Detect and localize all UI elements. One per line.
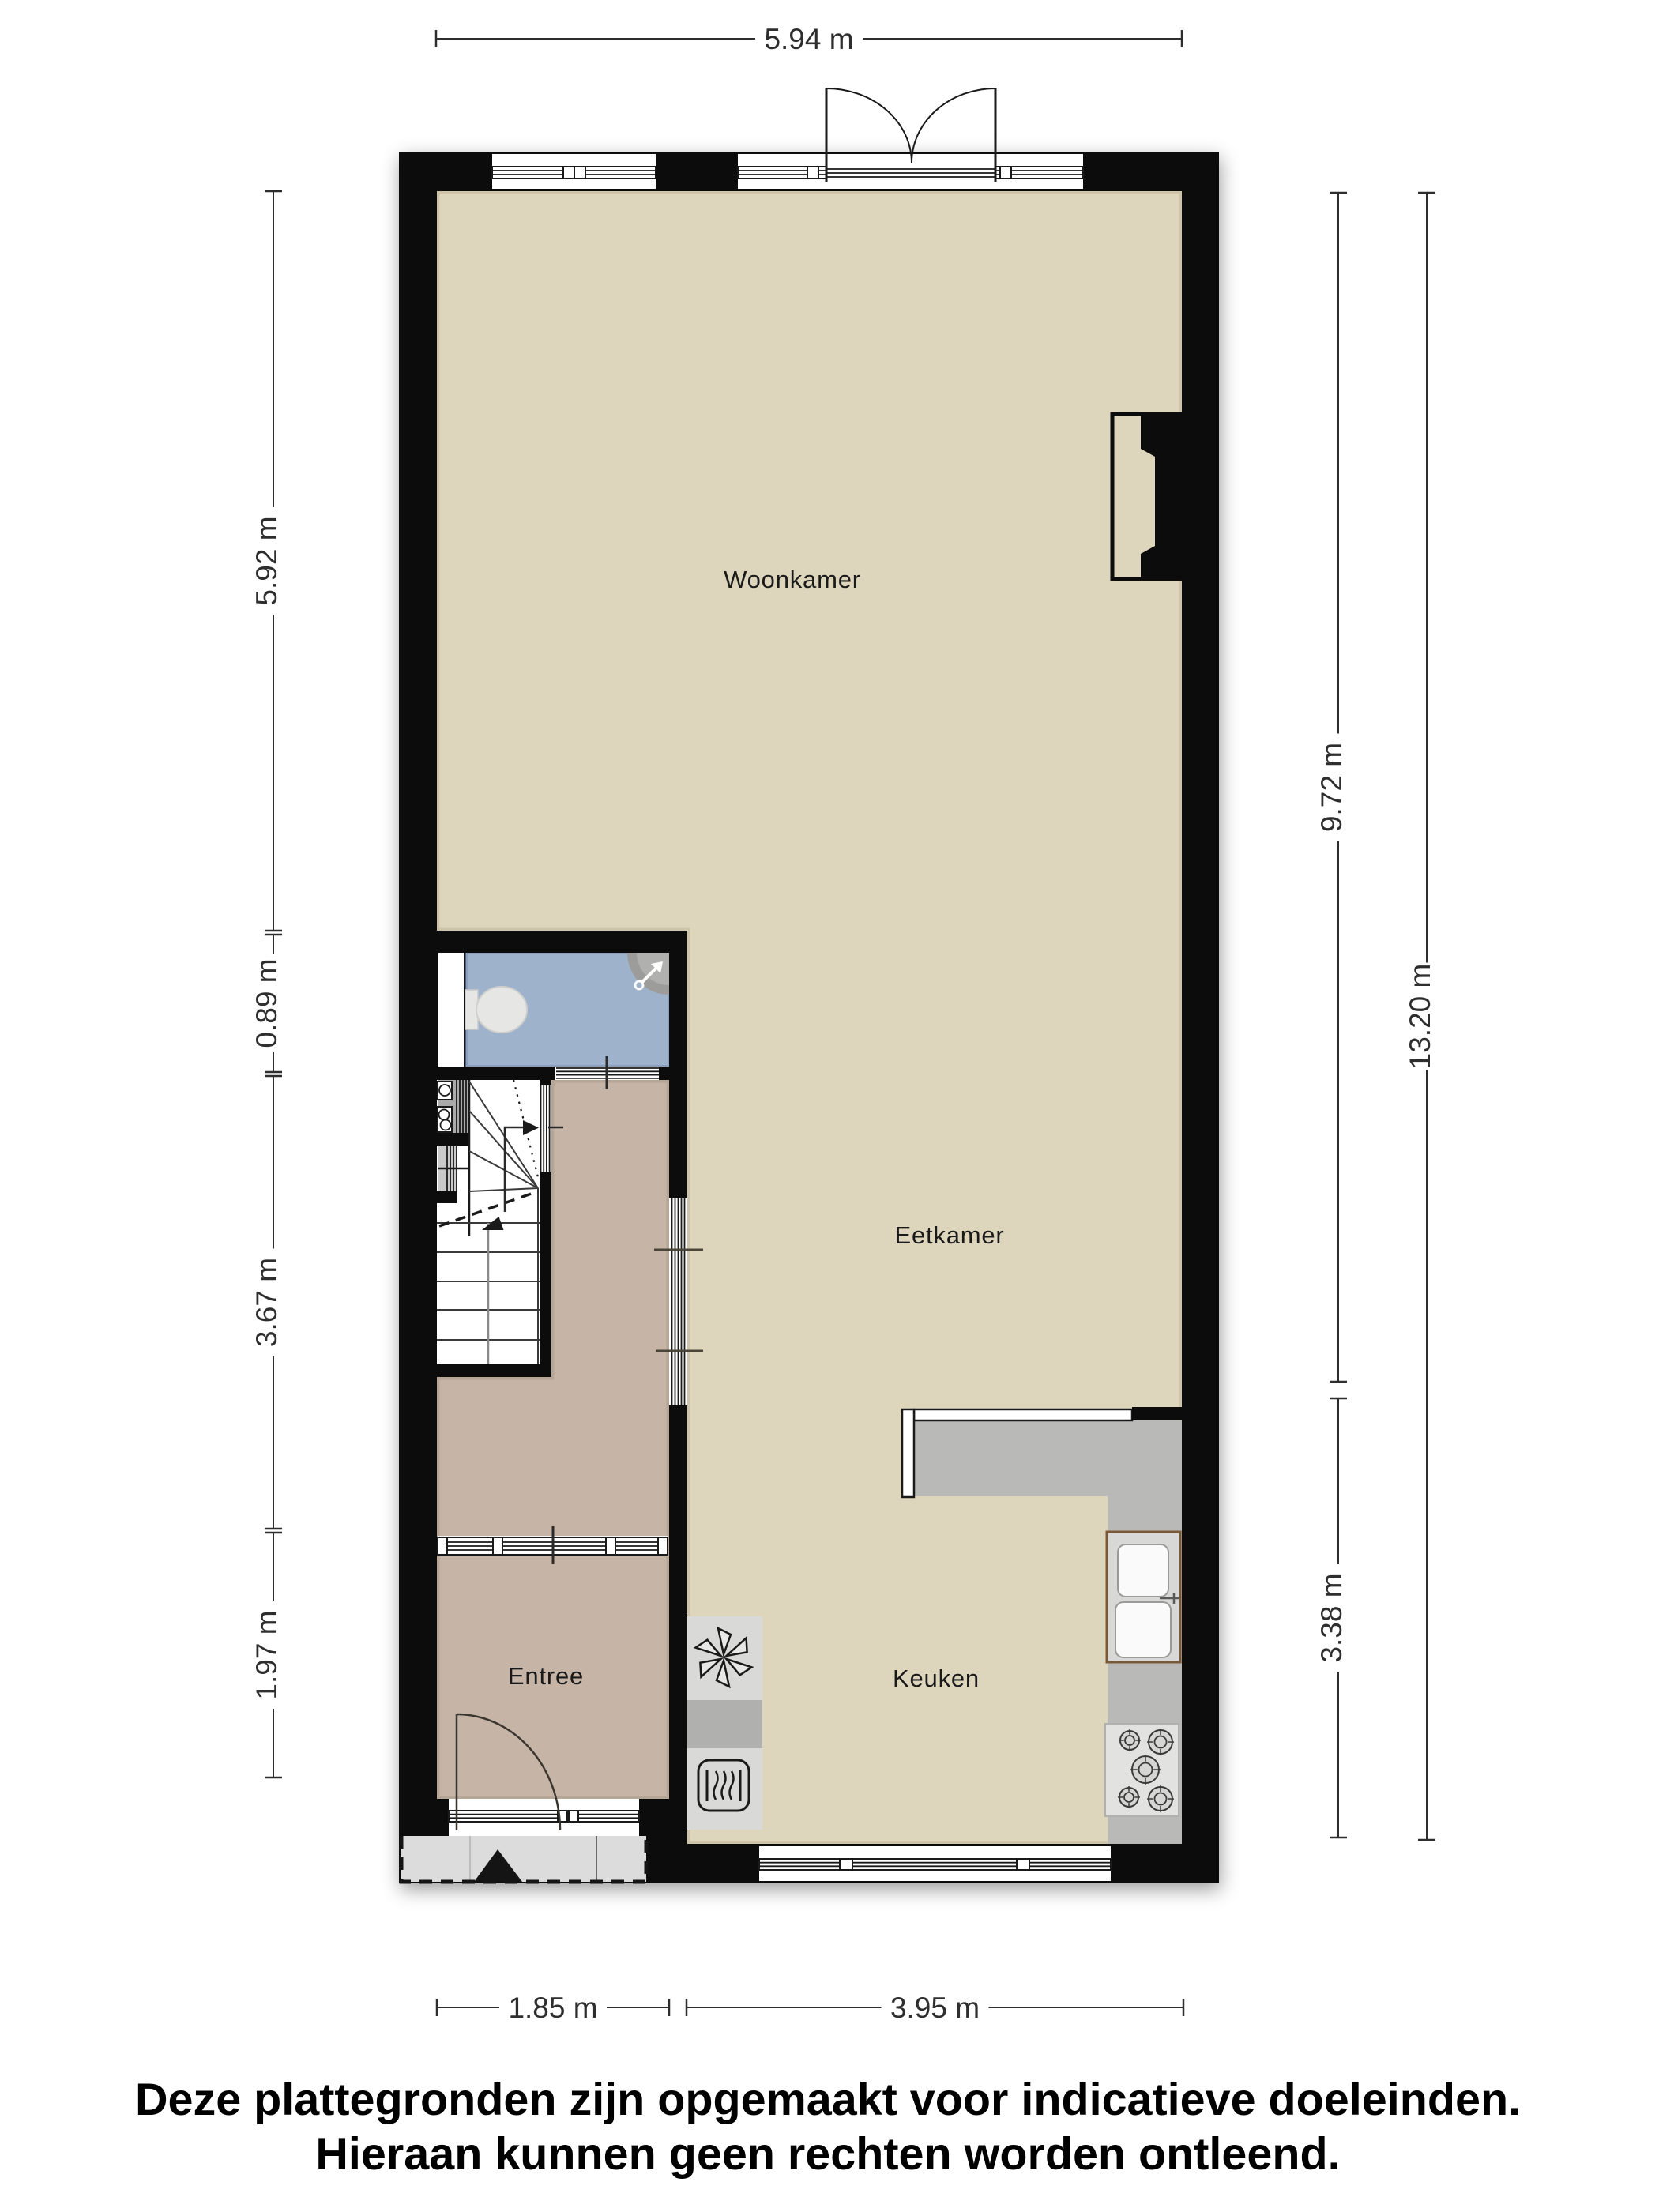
svg-text:5.92 m: 5.92 m <box>250 516 283 605</box>
svg-text:13.20 m: 13.20 m <box>1404 964 1436 1070</box>
svg-text:3.38 m: 3.38 m <box>1315 1573 1348 1662</box>
svg-text:5.94 m: 5.94 m <box>764 23 853 55</box>
svg-text:Hieraan kunnen geen rechten wo: Hieraan kunnen geen rechten worden ontle… <box>315 2129 1340 2180</box>
svg-text:3.95 m: 3.95 m <box>890 1992 980 2024</box>
svg-text:3.67 m: 3.67 m <box>250 1258 283 1347</box>
svg-text:Woonkamer: Woonkamer <box>724 566 861 593</box>
svg-text:Eetkamer: Eetkamer <box>894 1221 1004 1249</box>
svg-text:9.72 m: 9.72 m <box>1315 743 1348 832</box>
svg-text:0.89 m: 0.89 m <box>250 958 283 1048</box>
svg-text:Entree: Entree <box>508 1662 584 1690</box>
svg-text:Keuken: Keuken <box>893 1665 980 1692</box>
svg-text:1.85 m: 1.85 m <box>508 1992 597 2024</box>
svg-text:1.97 m: 1.97 m <box>250 1610 283 1699</box>
svg-text:Deze plattegronden zijn opgema: Deze plattegronden zijn opgemaakt voor i… <box>135 2075 1521 2125</box>
